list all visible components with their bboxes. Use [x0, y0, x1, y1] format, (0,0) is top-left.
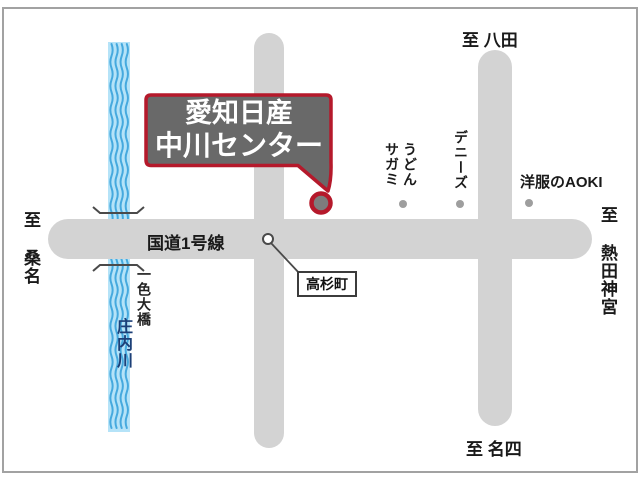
- poi-dot-dennys: [456, 200, 464, 208]
- bridge-label-isshiki-ohashi: 一色大橋: [134, 267, 154, 327]
- intersection-name-box: 高杉町: [297, 271, 357, 297]
- intersection-marker: [263, 234, 273, 244]
- direction-hatta: 至 八田: [462, 26, 518, 51]
- dealer-name-line1: 愛知日産: [146, 100, 332, 127]
- poi-label-aoki: 洋服のAOKI: [520, 171, 603, 192]
- poi-label-dennys: デニーズ: [451, 130, 471, 190]
- dealer-name-line2: 中川センター: [146, 132, 332, 160]
- direction-meishi: 至 名四: [466, 435, 522, 460]
- poi-dot-aoki: [525, 199, 533, 207]
- poi-label-udon-sagami: うどん サガミ: [383, 142, 419, 187]
- marker-layer: [0, 0, 640, 480]
- poi-dot-udon-sagami: [399, 200, 407, 208]
- takasugi-leader-line: [271, 243, 300, 274]
- direction-atsuta-jingu: 至 熱田神宮: [595, 206, 620, 316]
- intersection-name-label: 高杉町: [306, 274, 348, 294]
- dealer-location-marker: [312, 194, 331, 213]
- direction-kuwana: 至 桑名: [18, 211, 43, 285]
- map-canvas: 愛知日産 中川センター 国道1号線 至 八田 至 名四 至 桑名 至 熱田神宮 …: [0, 0, 640, 480]
- river-label-shonai: 庄内川: [110, 318, 134, 369]
- route1-label: 国道1号線: [147, 229, 224, 254]
